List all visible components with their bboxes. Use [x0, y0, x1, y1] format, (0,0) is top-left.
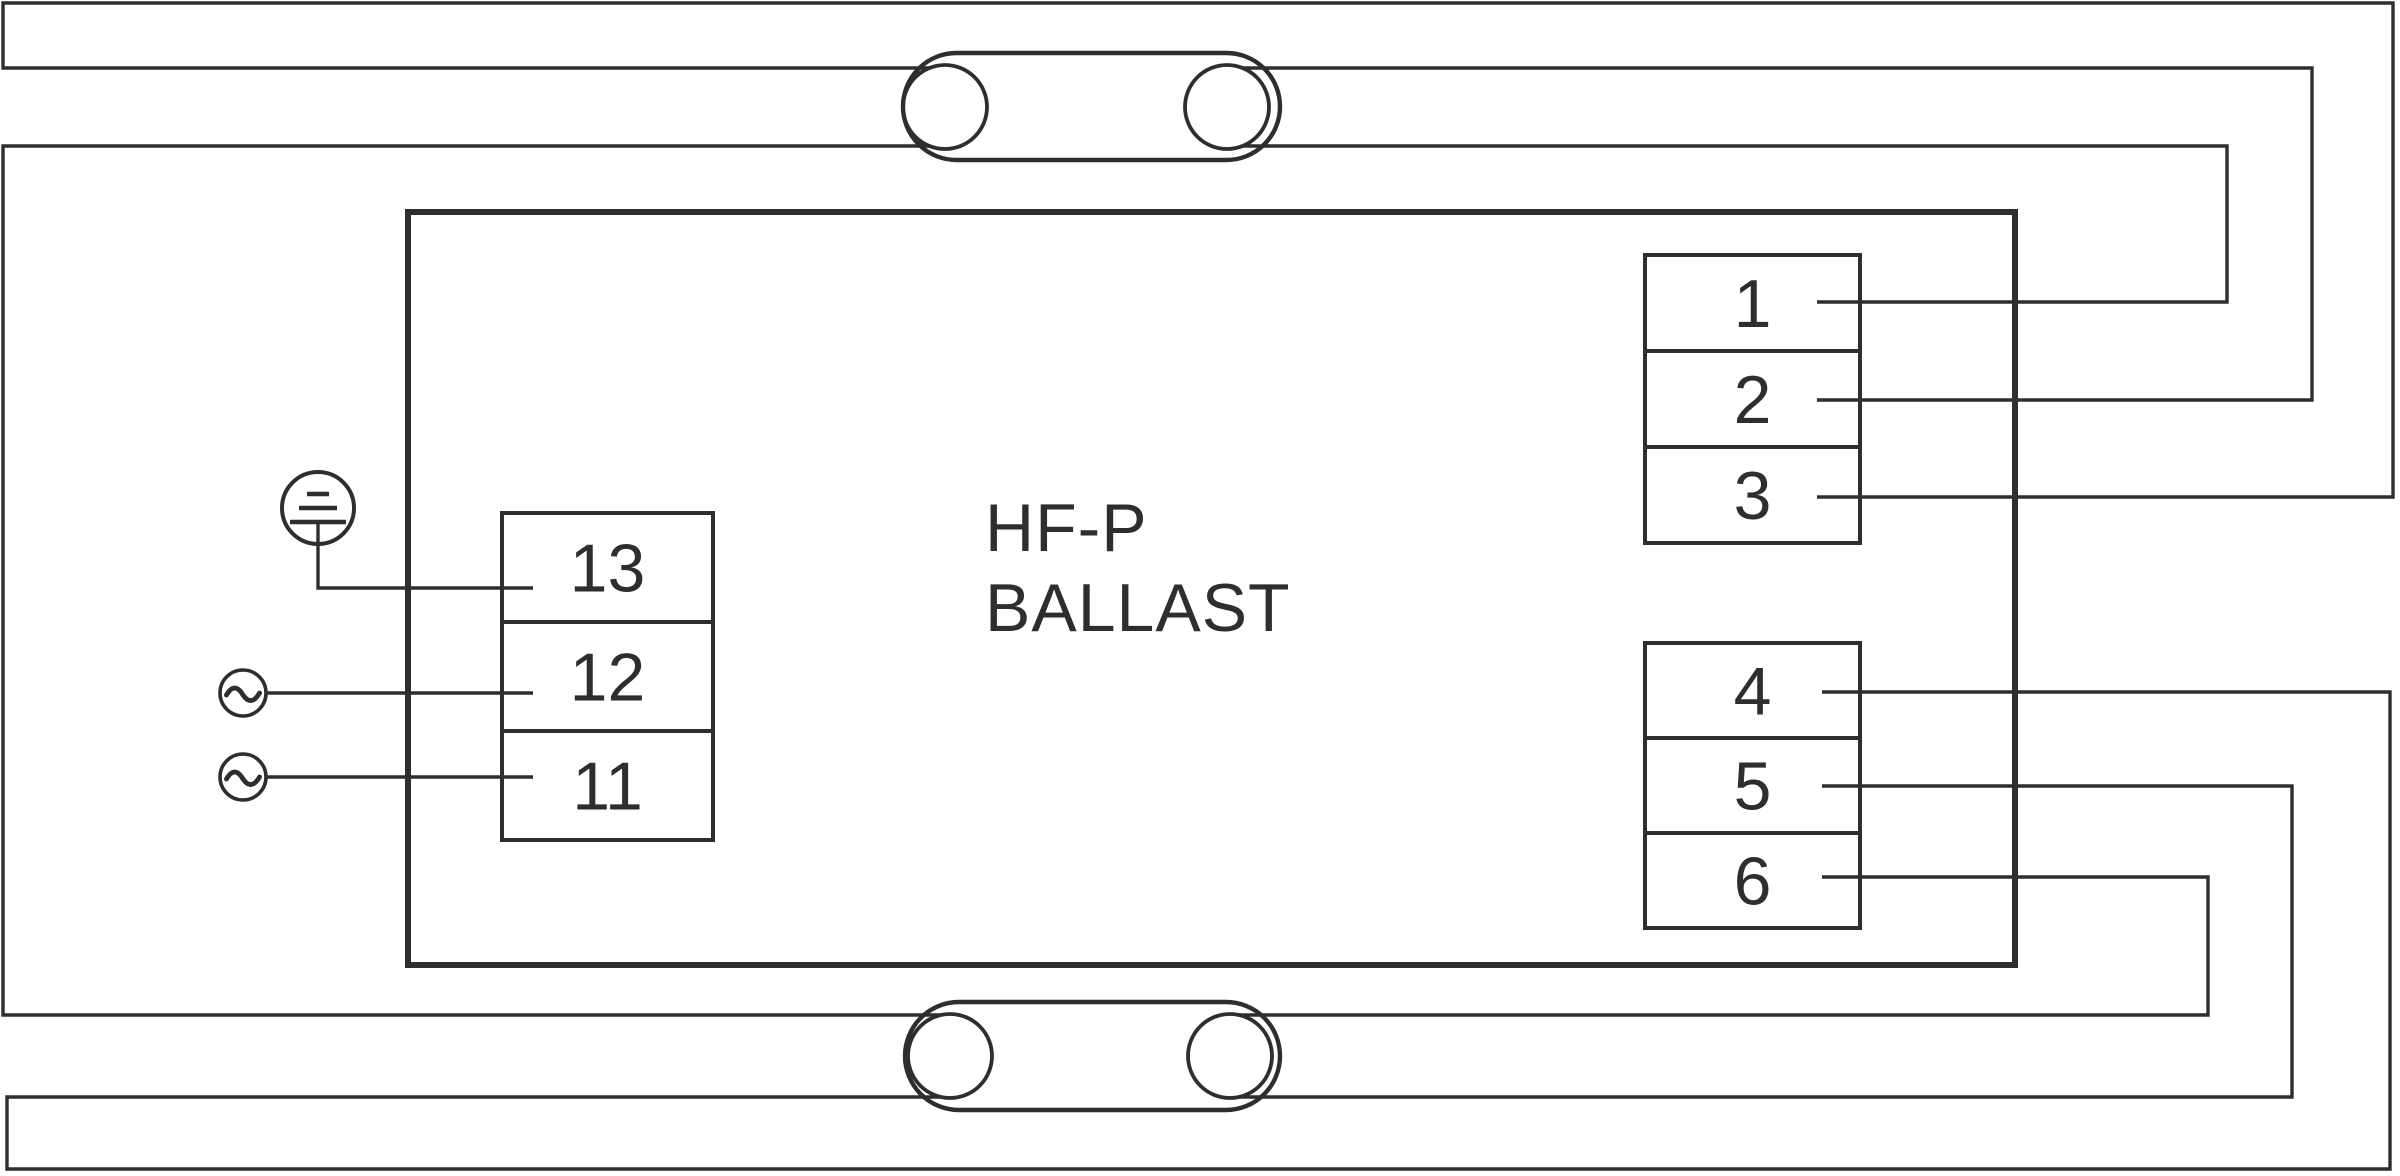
terminal-11-label: 11	[572, 749, 643, 825]
ballast-label: HF-P BALLAST	[985, 488, 1291, 648]
terminal-6-label: 6	[1734, 844, 1772, 920]
fluorescent-lamp-top-filament-right	[1185, 65, 1269, 149]
terminal-1-label: 1	[1734, 266, 1772, 342]
wiring-diagram-page: 123456131211 HF-P BALLAST	[0, 0, 2400, 1176]
ballast-label-line2: BALLAST	[985, 568, 1291, 648]
terminal-12-label: 12	[570, 640, 646, 716]
fluorescent-lamp-bottom	[905, 1002, 1280, 1110]
ballast-label-line1: HF-P	[985, 488, 1291, 568]
terminal-3-label: 3	[1734, 458, 1772, 534]
fluorescent-lamp-bottom-filament-right	[1188, 1014, 1272, 1098]
wire-lamp1-left-lower-pin-to-lamp2-left-upper-pin	[3, 146, 941, 1015]
terminal-2-label: 2	[1734, 362, 1772, 438]
fluorescent-lamp-top-filament-left	[903, 65, 987, 149]
wire-terminal6-to-lamp2-right-upper-pin	[1239, 877, 2208, 1015]
ac-source-live-icon-wave	[226, 688, 259, 701]
fluorescent-lamp-bottom-filament-left	[908, 1014, 992, 1098]
terminal-4-label: 4	[1734, 654, 1772, 730]
ac-source-neutral-icon-wave	[226, 772, 259, 785]
terminal-5-label: 5	[1734, 749, 1772, 825]
terminal-13-label: 13	[570, 531, 646, 607]
